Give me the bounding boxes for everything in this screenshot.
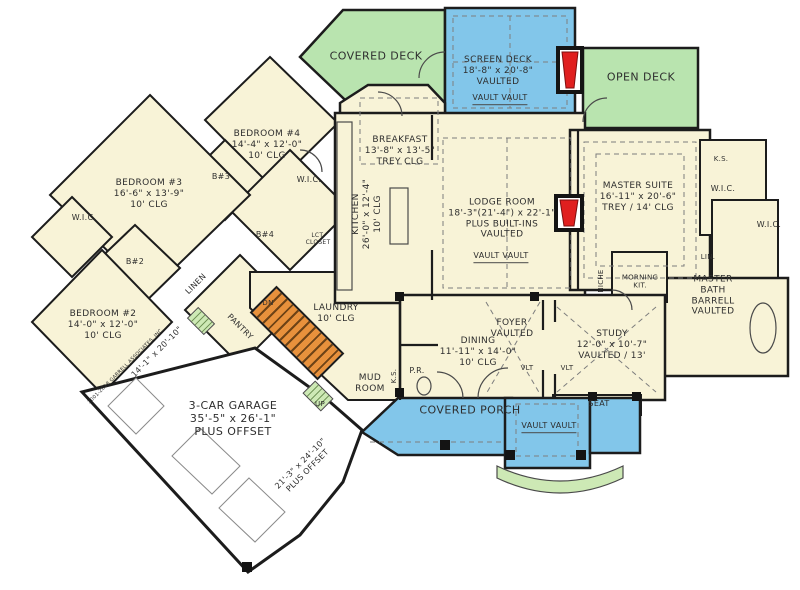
master-bath-label: MASTER BATH BARRELL VAULTED (670, 274, 757, 317)
front-steps (497, 466, 623, 493)
mud-room-label: MUD ROOM (355, 373, 385, 395)
kitchen-label: KITCHEN 26'-0" x 12'-4" 10' CLG (351, 179, 383, 250)
covered-porch-label: COVERED PORCH (419, 403, 520, 416)
vlt-right-label: VLT (561, 364, 574, 372)
bath4-label: B#4 (256, 230, 274, 240)
bath2-label: B#2 (126, 257, 144, 267)
niche-label: NICHE (597, 269, 605, 292)
column (395, 292, 404, 301)
column (395, 388, 404, 397)
vlt-left-label: VLT (521, 364, 534, 372)
ks-label: K.S. (714, 155, 729, 163)
wic-master2-area (712, 200, 778, 286)
bedroom2-label: BEDROOM #2 14'-0" x 12'-0" 10' CLG (68, 309, 139, 341)
lodge-vault-label: VAULT VAULT (473, 251, 528, 263)
up-label: UP (315, 400, 325, 408)
column (576, 450, 586, 460)
floor-plan-canvas: COVERED DECK SCREEN DECK 18'-8" x 20'-8"… (0, 0, 800, 590)
seat-label: SEAT (588, 399, 609, 409)
linen-master-label: LIN. (701, 253, 716, 261)
lodge-fireplace (554, 194, 584, 232)
wic-bed4-label: W.I.C. (297, 175, 322, 185)
lodge-room-label: LODGE ROOM 18'-3"(21'-4") x 22'-1" PLUS … (448, 197, 555, 240)
wic-master1-label: W.I.C. (711, 184, 736, 194)
morning-kitchen-label: MORNING KIT. (622, 274, 658, 291)
dining-label: DINING 11'-11" x 14'-0" 10' CLG (440, 336, 517, 368)
screen-deck-label: SCREEN DECK 18'-8" x 20'-8" VAULTED (463, 55, 534, 87)
powder-room-label: P.R. (409, 366, 424, 376)
ks-mud-label: K.S. (390, 369, 398, 384)
study-label: STUDY 12'-0" x 10'-7" VAULTED / 13' (577, 329, 648, 361)
breakfast-label: BREAKFAST 13'-8" x 13'-5" TREY CLG (365, 135, 436, 167)
bedroom4-label: BEDROOM #4 14'-4" x 12'-0" 10' CLG (232, 129, 303, 161)
laundry-label: LAUNDRY 10' CLG (313, 303, 358, 325)
column (242, 562, 252, 572)
screen-deck-fireplace (556, 46, 584, 94)
lct-closet-label: LCT. CLOSET (306, 232, 331, 246)
wic-master2-label: W.I.C. (757, 220, 782, 230)
dn-label: DN (262, 299, 273, 307)
column (530, 292, 539, 301)
open-deck-area (583, 48, 698, 128)
column (505, 450, 515, 460)
bath3-label: B#3 (212, 172, 230, 182)
garage-label: 3-CAR GARAGE 35'-5" x 26'-1" PLUS OFFSET (189, 399, 278, 439)
screen-deck-vault-label: VAULT VAULT (472, 93, 527, 105)
column (440, 440, 450, 450)
bedroom3-label: BEDROOM #3 16'-6" x 13'-9" 10' CLG (114, 178, 185, 210)
master-suite-label: MASTER SUITE 16'-11" x 20'-6" TREY / 14'… (600, 181, 677, 213)
open-deck-label: OPEN DECK (607, 70, 675, 83)
column (632, 392, 641, 401)
covered-deck-label: COVERED DECK (330, 49, 423, 62)
porch-vault-label: VAULT VAULT (521, 421, 576, 433)
wic-bed3-label: W.I.C. (72, 213, 97, 223)
